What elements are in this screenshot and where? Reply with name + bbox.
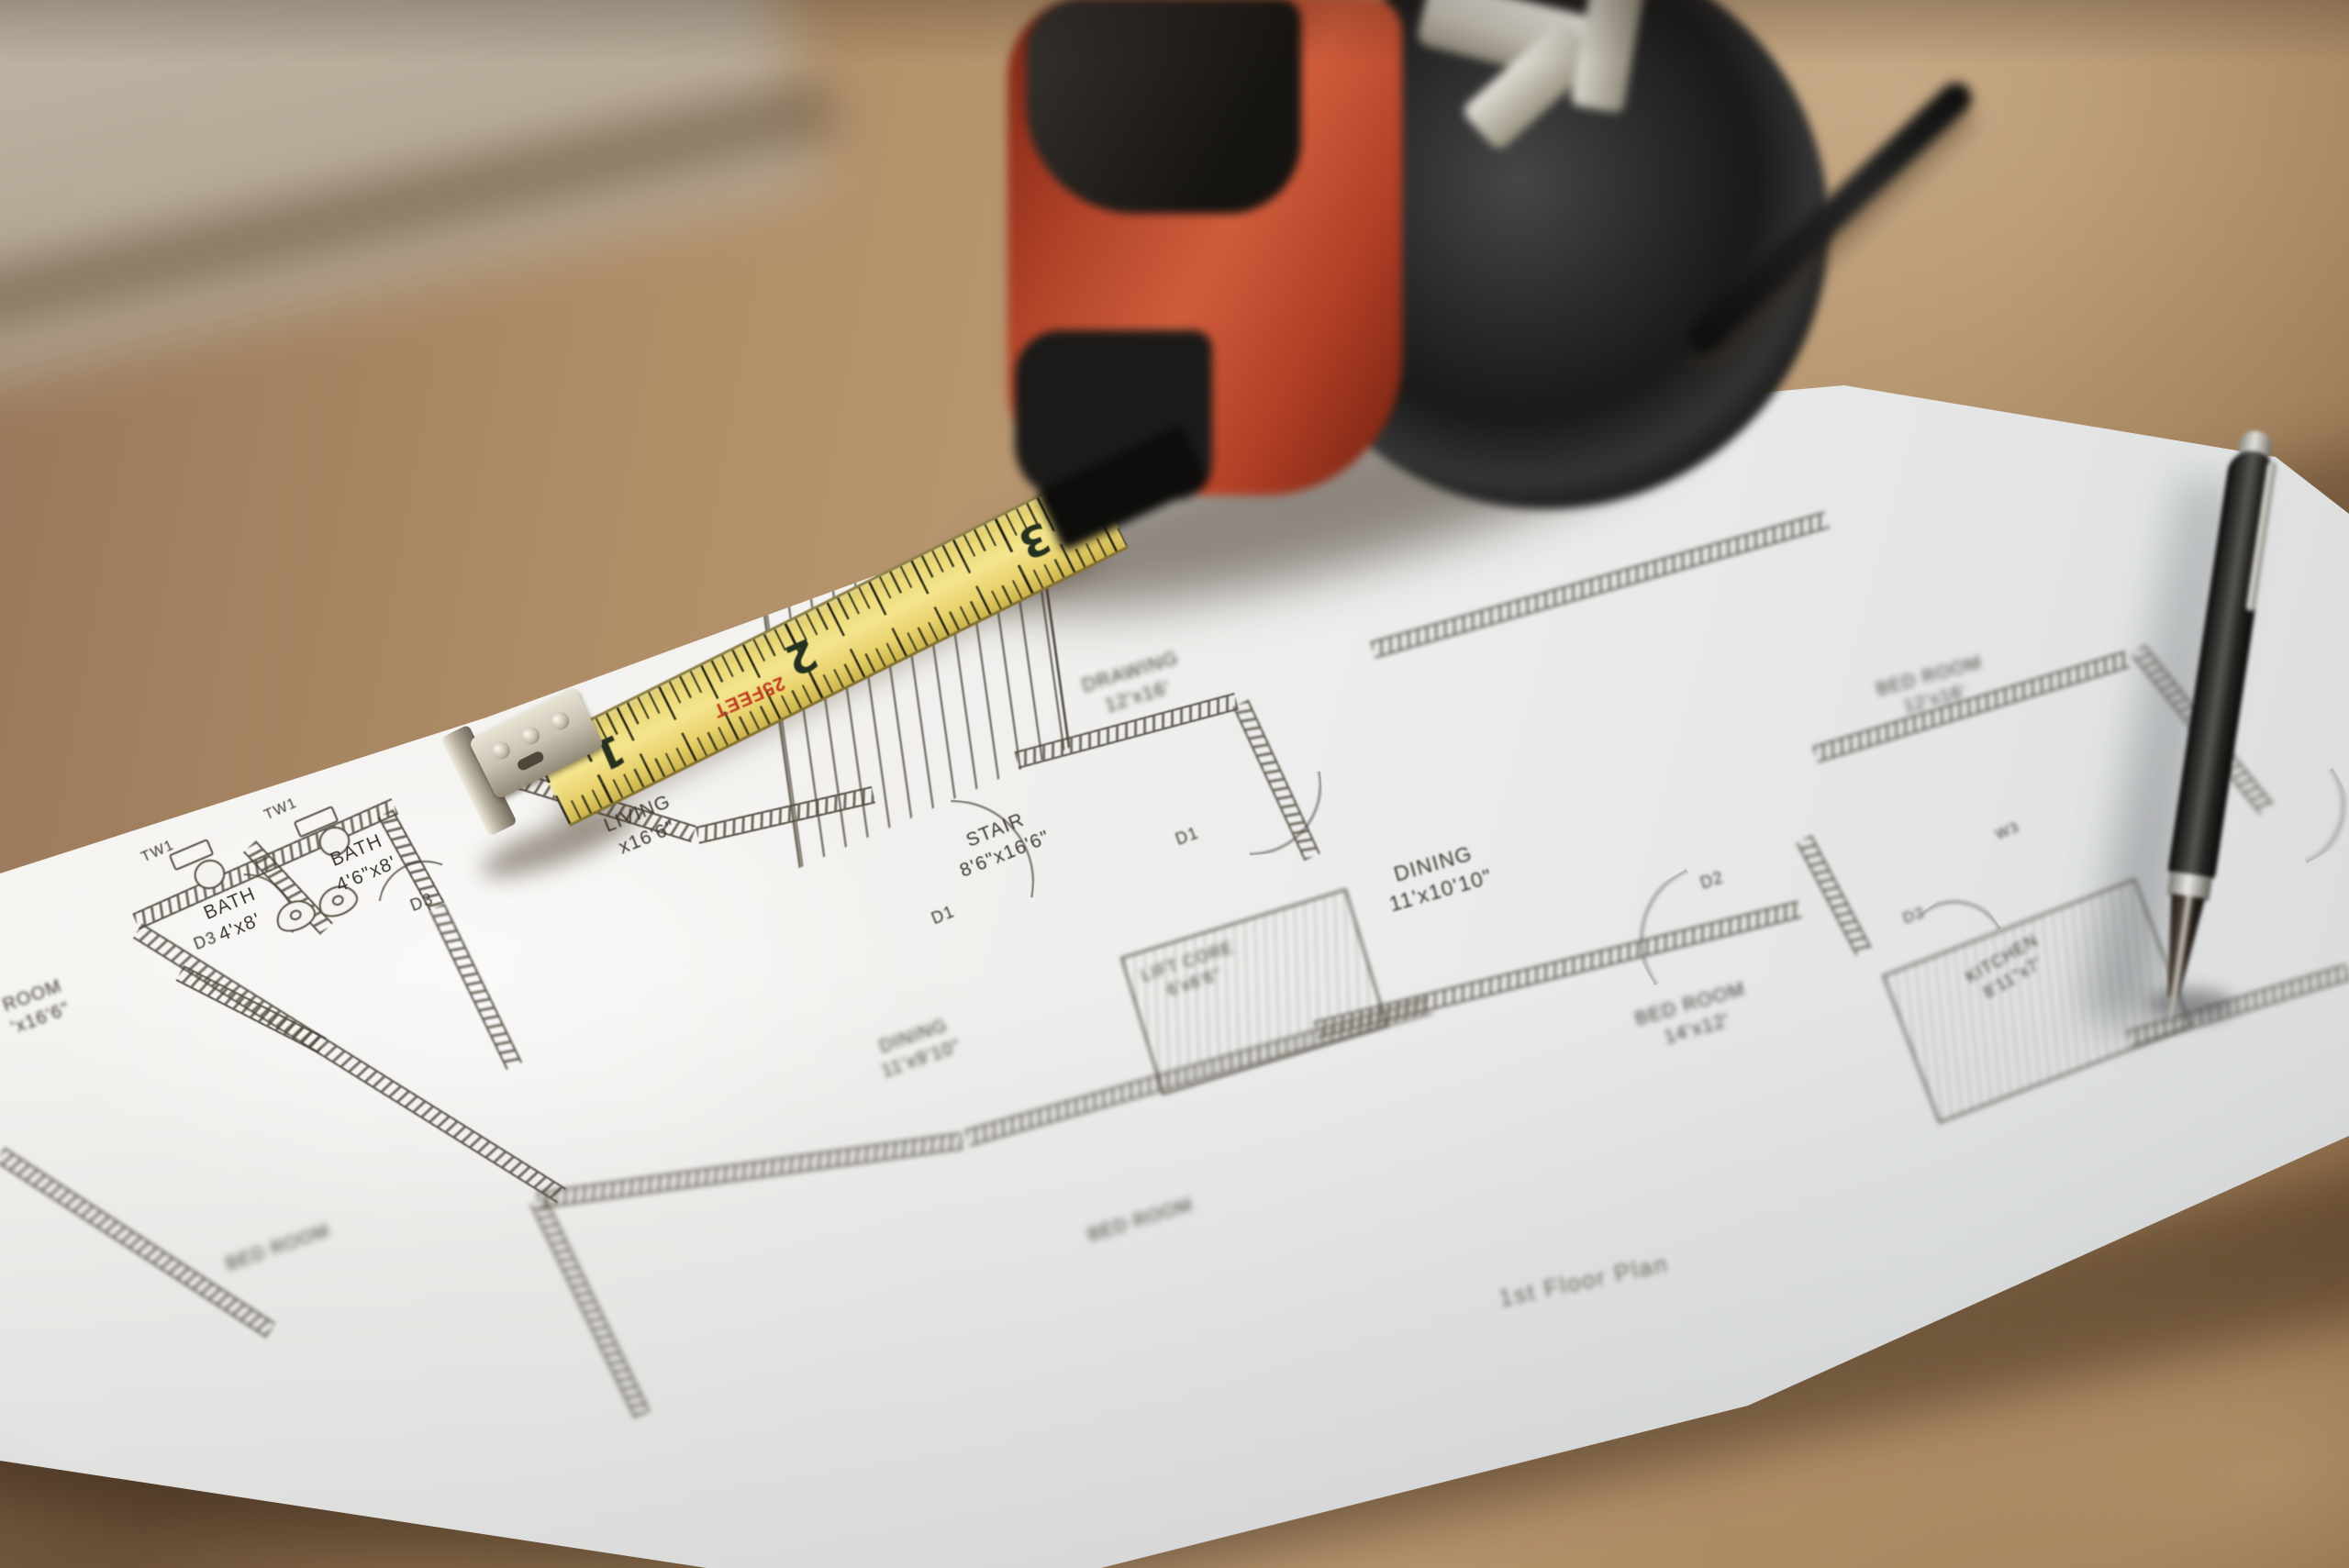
tape-rubber-bumper [1026, 0, 1301, 214]
pen-cone [2153, 893, 2208, 1000]
photo-stage: TW1 TW1 W3 D3 D3 D1 D1 D2 D2 BATH4'x8' B… [0, 0, 2349, 1568]
